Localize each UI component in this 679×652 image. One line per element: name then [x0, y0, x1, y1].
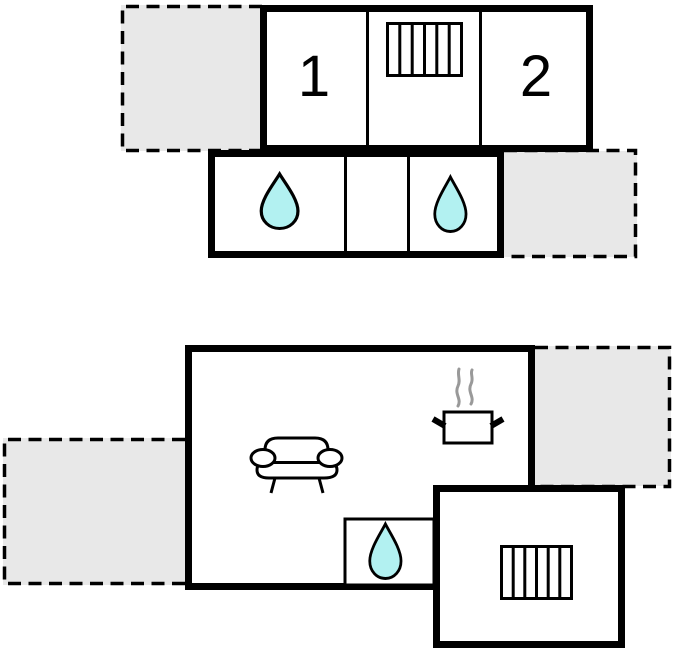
floor-plan-image: 1 2 [0, 0, 679, 652]
room-1-label: 1 [298, 44, 330, 109]
terrace-bottom-right [535, 346, 671, 487]
terrace-top-left [121, 5, 262, 151]
terrace-area [3, 438, 185, 585]
radiator-icon [388, 24, 462, 76]
terrace-area [504, 151, 637, 257]
terrace-area [121, 5, 262, 151]
radiator-icon [502, 547, 572, 599]
room-2-label: 2 [520, 44, 552, 109]
upper-floor: 1 2 [121, 5, 637, 257]
terrace-top-right [504, 151, 637, 258]
terrace-bottom-left [3, 438, 185, 585]
terrace-area [535, 346, 671, 486]
floor-plan: 1 2 [0, 0, 679, 652]
lower-floor [3, 346, 671, 645]
